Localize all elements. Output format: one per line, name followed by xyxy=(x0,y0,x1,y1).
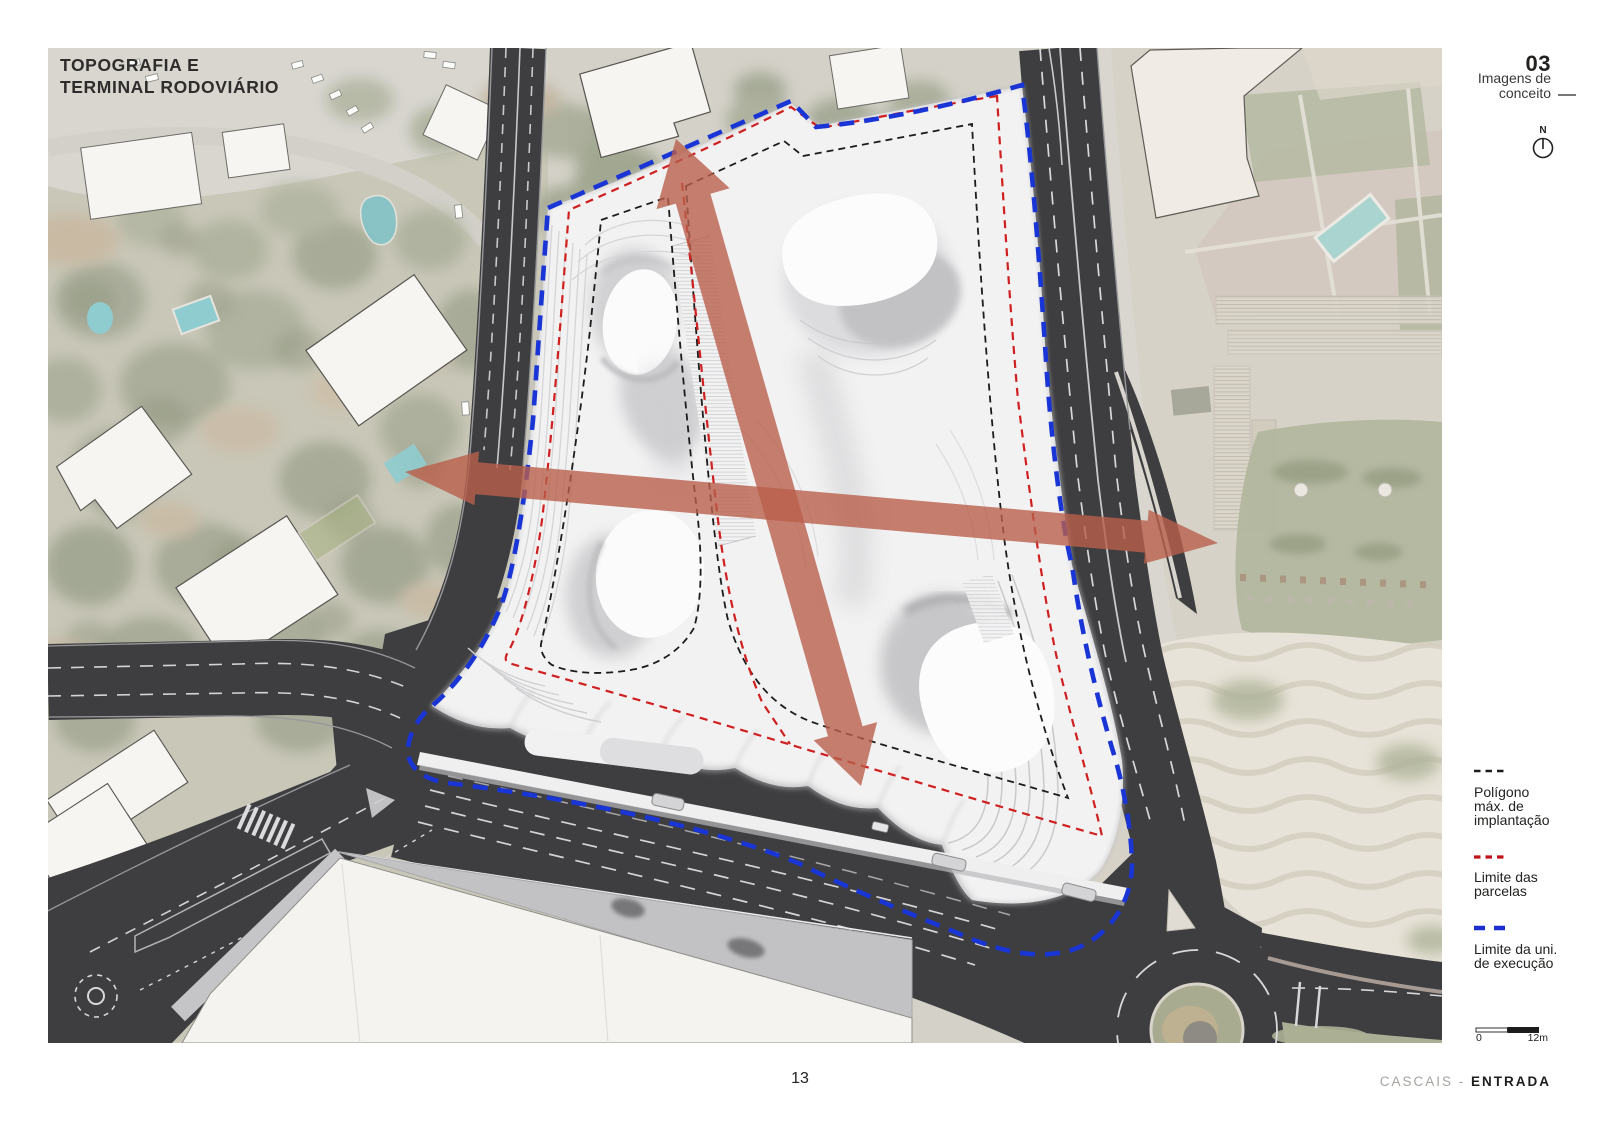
svg-text:CASCAIS - ENTRADA: CASCAIS - ENTRADA xyxy=(1380,1074,1551,1089)
svg-text:N: N xyxy=(1539,125,1546,136)
svg-text:conceito: conceito xyxy=(1499,85,1551,101)
svg-text:TOPOGRAFIA E: TOPOGRAFIA E xyxy=(60,55,199,75)
svg-text:0: 0 xyxy=(1476,1032,1482,1044)
svg-text:implantação: implantação xyxy=(1474,812,1550,828)
svg-text:TERMINAL RODOVIÁRIO: TERMINAL RODOVIÁRIO xyxy=(60,76,279,97)
svg-text:de execução: de execução xyxy=(1474,955,1554,971)
svg-text:Imagens de: Imagens de xyxy=(1478,70,1551,86)
svg-text:13: 13 xyxy=(791,1070,809,1087)
svg-text:12m: 12m xyxy=(1528,1032,1549,1044)
svg-text:parcelas: parcelas xyxy=(1474,883,1527,899)
